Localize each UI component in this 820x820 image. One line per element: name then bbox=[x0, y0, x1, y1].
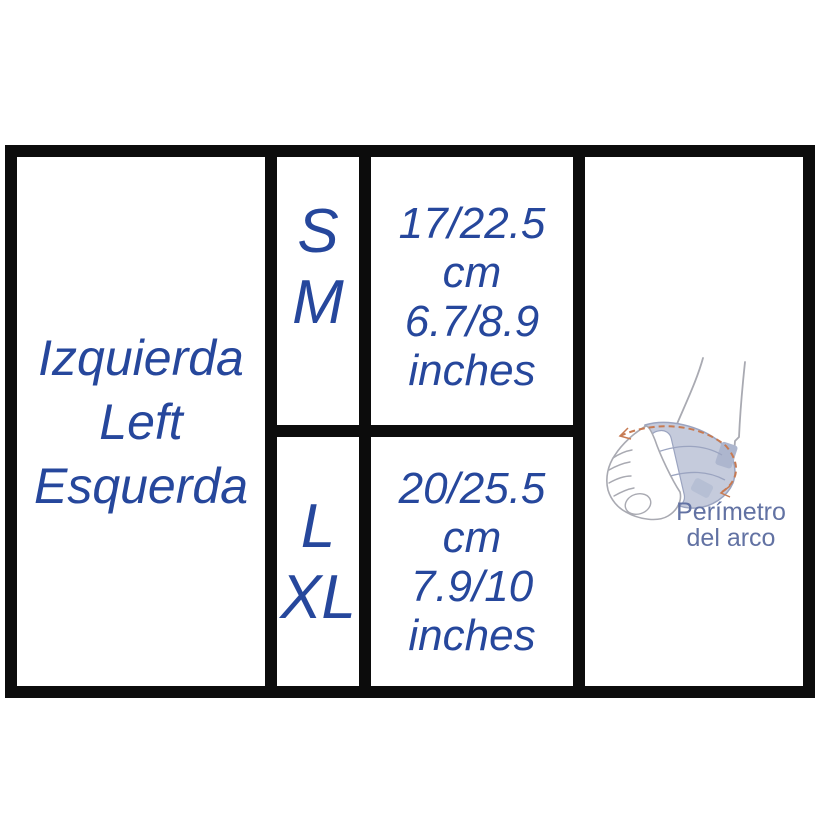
side-label-spanish: Izquierda bbox=[38, 326, 244, 390]
caption-line-1: Perímetro bbox=[665, 499, 797, 525]
size-m-label: M bbox=[292, 267, 344, 338]
side-label-english: Left bbox=[99, 390, 182, 454]
size-chart-table: Izquierda Left Esquerda S M 17/22.5 cm 6… bbox=[5, 145, 815, 698]
sm-range-inch-unit: inches bbox=[399, 346, 546, 395]
measurement-cell-lxl: 20/25.5 cm 7.9/10 inches bbox=[371, 437, 573, 686]
size-l-label: L bbox=[280, 491, 356, 562]
size-xl-label: XL bbox=[280, 562, 356, 633]
sm-range-cm-value: 17/22.5 bbox=[399, 199, 546, 248]
size-cell-lxl: L XL bbox=[277, 437, 359, 686]
sm-range-inch-value: 6.7/8.9 bbox=[399, 297, 546, 346]
lxl-range-cm-value: 20/25.5 bbox=[399, 464, 546, 513]
caption-line-2: del arco bbox=[665, 525, 797, 551]
lxl-range-cm-unit: cm bbox=[399, 513, 546, 562]
size-s-label: S bbox=[292, 196, 344, 267]
size-cell-sm: S M bbox=[277, 157, 359, 425]
sm-range-cm-unit: cm bbox=[399, 248, 546, 297]
side-label-portuguese: Esquerda bbox=[34, 454, 248, 518]
measurement-cell-sm: 17/22.5 cm 6.7/8.9 inches bbox=[371, 157, 573, 425]
arch-perimeter-caption: Perímetro del arco bbox=[665, 499, 797, 551]
lxl-range-inch-value: 7.9/10 bbox=[399, 562, 546, 611]
side-label-cell: Izquierda Left Esquerda bbox=[17, 157, 265, 686]
lxl-range-inch-unit: inches bbox=[399, 611, 546, 660]
illustration-cell: Perímetro del arco bbox=[585, 157, 803, 686]
